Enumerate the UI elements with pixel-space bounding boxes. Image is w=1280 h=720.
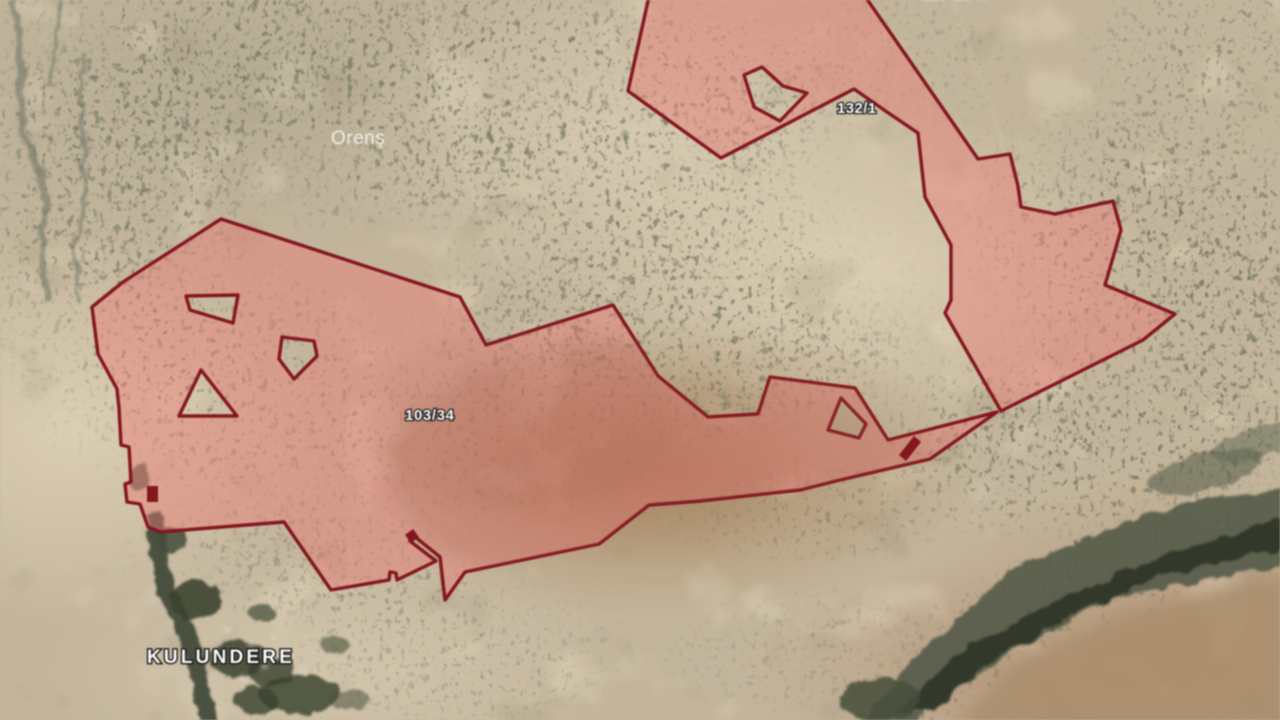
svg-text:KULUNDERE: KULUNDERE: [147, 647, 295, 668]
svg-text:Orenş: Orenş: [331, 128, 385, 149]
svg-text:103/34: 103/34: [405, 407, 455, 424]
svg-text:132/1: 132/1: [837, 100, 877, 117]
